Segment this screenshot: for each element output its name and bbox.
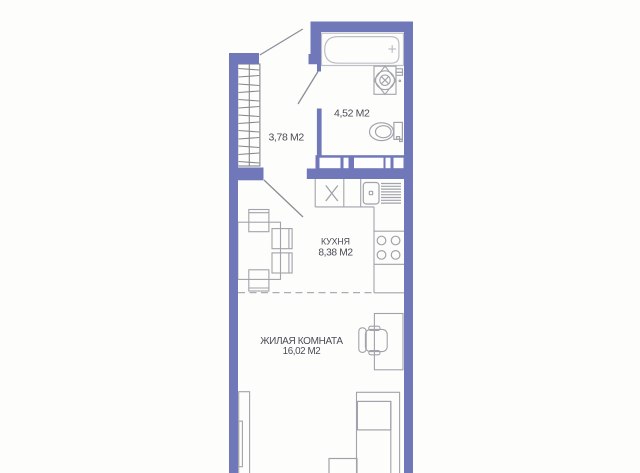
svg-text:4,52 М2: 4,52 М2 xyxy=(334,108,370,120)
svg-text:3,78 М2: 3,78 М2 xyxy=(268,132,304,144)
svg-text:КУХНЯ: КУХНЯ xyxy=(321,236,350,246)
svg-text:16,02 М2: 16,02 М2 xyxy=(283,346,321,357)
svg-text:8,38 М2: 8,38 М2 xyxy=(318,248,353,259)
